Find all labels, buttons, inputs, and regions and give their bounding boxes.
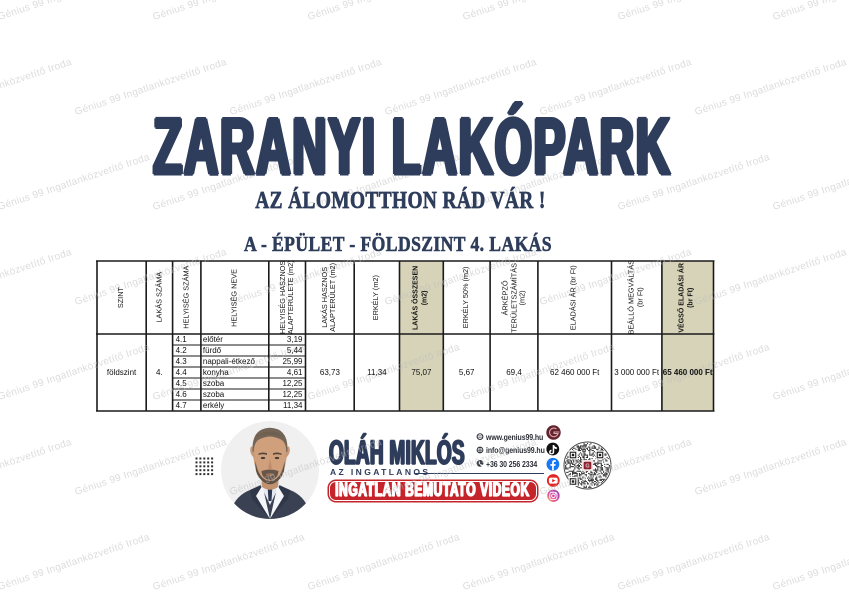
svg-text:G: G — [585, 464, 589, 470]
